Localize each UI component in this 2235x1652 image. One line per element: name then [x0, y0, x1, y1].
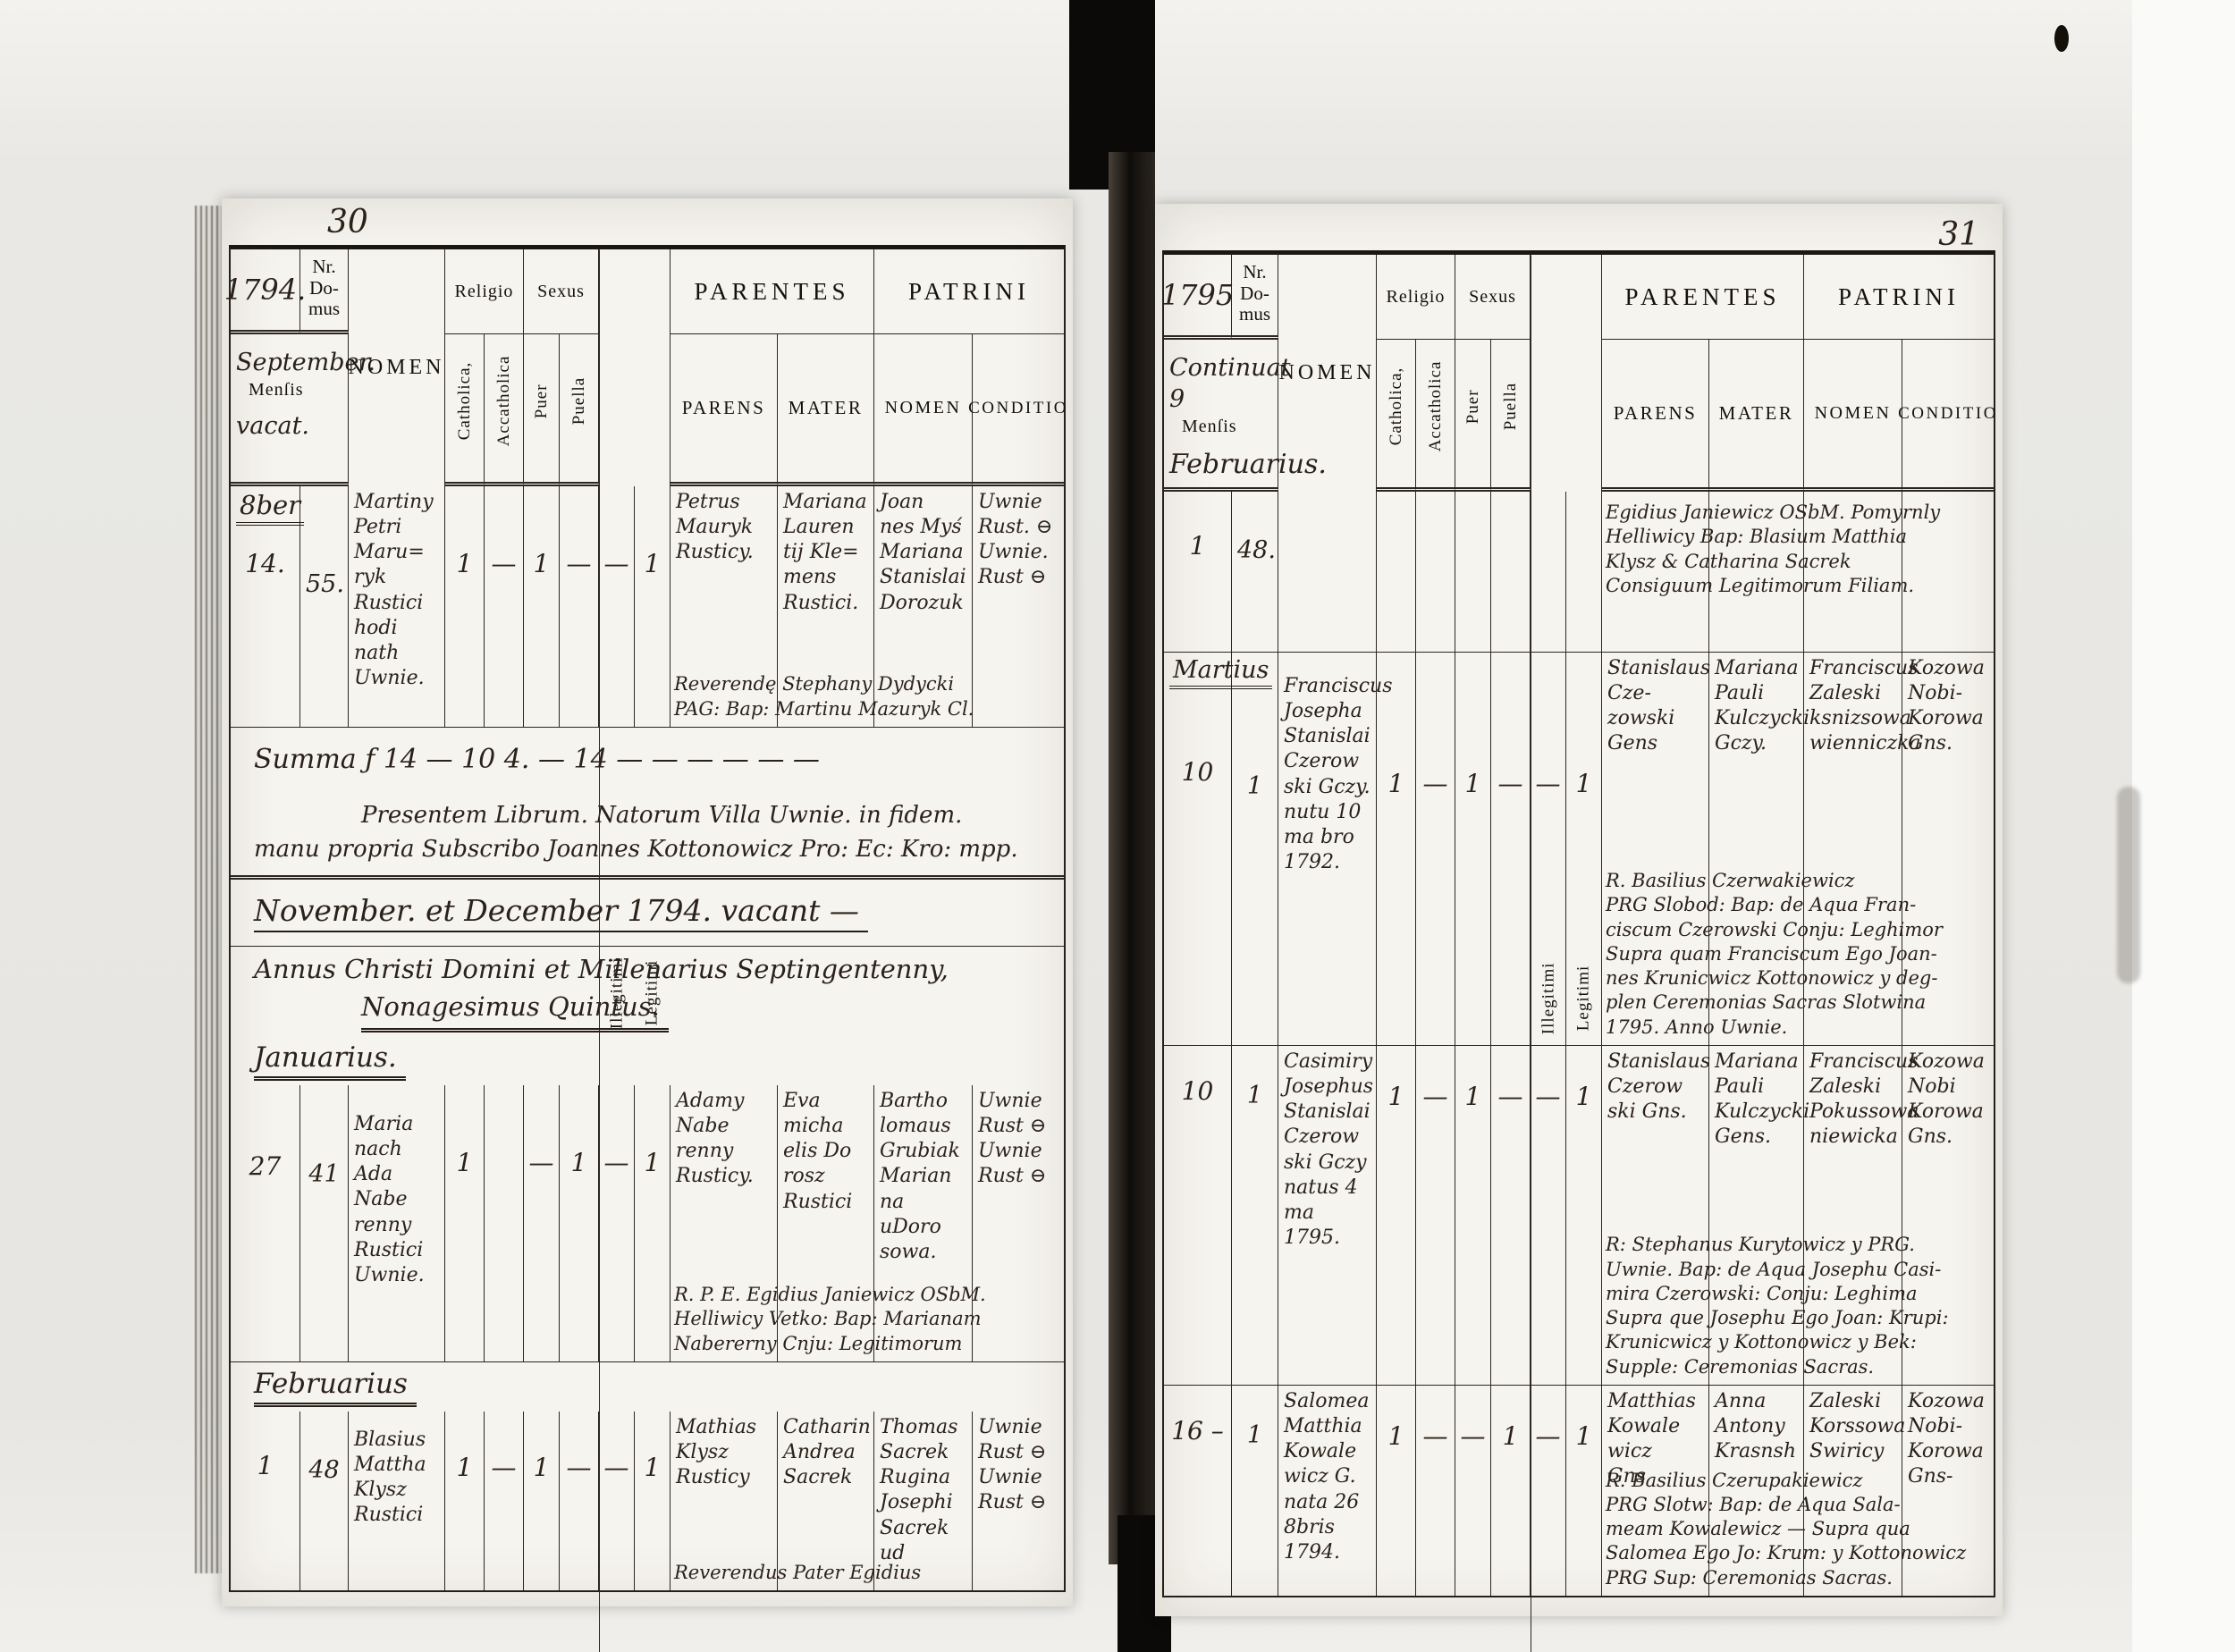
legitimi-tally: 1 [635, 1085, 670, 1362]
record-nomen-cell: Salomea Matthia Kowale wicz G. nata 26 8… [1278, 1386, 1377, 1596]
puer-col-header: Puer [1455, 340, 1491, 492]
illegitimi-tally [1531, 492, 1566, 653]
right-page-number: 31 [1938, 216, 1979, 253]
tally-mark: 1 [534, 1453, 550, 1482]
godparents-names: Franciscus Zaleski Pokussowa niewicka [1809, 1049, 1896, 1150]
nr-label: Nr. [312, 256, 335, 277]
accatholica-col-header: Accatholica [485, 334, 524, 486]
vacant-months-row: November. et December 1794. vacant — [231, 880, 1064, 947]
puella-label: Puella [1501, 343, 1521, 469]
record-nomen-cell: Blasius Mattha Klysz Rustici [349, 1412, 445, 1590]
right-page: 31 1795 Nr.Do- mus NOMEN Religio Sexus I… [1155, 204, 2003, 1616]
mater-col-header: MATER [1709, 340, 1804, 492]
februarius-label: Februarius [254, 1368, 417, 1407]
puella-tally: 1 [1491, 1386, 1531, 1596]
catholica-label: Catholica, [1387, 343, 1406, 469]
record-nomen-cell: Franciscus Josepha Stanislai Czerow ski … [1278, 653, 1377, 1046]
house-number: 1 [1237, 1421, 1272, 1449]
house-number: 48. [1237, 536, 1272, 564]
illegitimi-tally: — [1531, 653, 1566, 1046]
puer-tally: 1 [1455, 1046, 1491, 1386]
godparents-status: Uwnie Rust. ⊖ Uwnie. Rust ⊖ [978, 490, 1058, 591]
tally-mark: — [567, 1453, 592, 1482]
catholica-tally: 1 [1377, 1046, 1416, 1386]
accatholica-label: Accatholica [494, 338, 514, 464]
father-name: Adamy Nabe renny Rusticy. [676, 1089, 772, 1190]
accatholica-tally: — [1416, 1386, 1455, 1596]
godparents-names: Franciscus Zaleski ksnizsowa wienniczka [1809, 656, 1896, 757]
catholica-col-header: Catholica, [1377, 340, 1416, 492]
nr-label: Nr. [1243, 261, 1266, 282]
legitimi-tally: 1 [635, 1412, 670, 1590]
parentes-header: PARENTES [1602, 255, 1804, 340]
record-day: 16 – [1169, 1416, 1226, 1445]
parens-cell: Petrus Mauryk Rusticy. Reverendę Stephan… [670, 486, 778, 728]
tally-mark: — [1536, 1421, 1561, 1451]
record-date-cell: Martius 10 [1164, 653, 1232, 1046]
parens-cell: Adamy Nabe renny Rusticy. R. P. E. Egidi… [670, 1085, 778, 1362]
month-februarius: Februarius. [1169, 447, 1272, 482]
child-name: Salomea Matthia Kowale wicz G. nata 26 8… [1284, 1389, 1371, 1565]
month-october: 8ber [236, 490, 304, 526]
tally-mark: 1 [457, 1148, 473, 1177]
tally-mark: 1 [457, 549, 473, 578]
catholica-tally: 1 [1377, 653, 1416, 1046]
patrini-nomen-col-header: NOMEN [1804, 340, 1902, 492]
accatholica-tally: — [485, 486, 524, 728]
puer-tally [1455, 492, 1491, 653]
godparents-status: Kozowa Nobi- Korowa Gns. [1908, 656, 1988, 757]
tally-mark: 1 [645, 1453, 661, 1482]
tally-mark: 1 [1503, 1421, 1519, 1451]
tally-mark: 1 [1576, 1082, 1592, 1111]
godparents-status: Uwnie Rust ⊖ Uwnie Rust ⊖ [978, 1415, 1058, 1516]
puella-tally: — [1491, 653, 1531, 1046]
tally-mark: — [1498, 1082, 1523, 1111]
left-page-number: 30 [327, 204, 368, 240]
record-domus-cell: 48 [300, 1412, 349, 1590]
tally-mark: 1 [1576, 1421, 1592, 1451]
accatholica-tally: — [485, 1412, 524, 1590]
child-name: Casimiry Josephus Stanislai Czerow ski G… [1284, 1049, 1371, 1251]
legitimi-tally [1566, 492, 1602, 653]
godparents-names: Thomas Sacrek Rugina Josephi Sacrek ud [880, 1415, 966, 1566]
puella-col-header: Puella [560, 334, 599, 486]
accatholica-tally [1416, 492, 1455, 653]
month-header-cell: Continuat 9 Menſis Februarius. [1164, 340, 1278, 492]
catholica-tally: 1 [1377, 1386, 1416, 1596]
mensis-label: Menſis [1182, 415, 1272, 438]
puer-col-header: Puer [524, 334, 560, 486]
tally-mark: 1 [1576, 769, 1592, 798]
parens-cell: Mathias Klysz Rusticy Reverendus Pater E… [670, 1412, 778, 1590]
tally-mark: — [529, 1148, 554, 1177]
baptism-note: Egidius Janiewicz OSbM. Pomyrnly Helliwi… [1606, 501, 1995, 598]
puella-tally: 1 [560, 1085, 599, 1362]
tally-mark: 1 [1465, 1082, 1481, 1111]
illegitimi-tally: — [599, 1085, 635, 1362]
house-number: 41 [306, 1160, 342, 1188]
book-spine-gutter [1109, 152, 1155, 1564]
attestation-line-1: Presentem Librum. Natorum Villa Uwnie. i… [361, 799, 962, 833]
record-nomen-cell: Martiny Petri Maru= ryk Rustici hodi nat… [349, 486, 445, 728]
legitimi-tally: 1 [635, 486, 670, 728]
annus-line-2: Nonagesimus Quintus. [361, 988, 669, 1032]
record-domus-cell: 1 [1232, 1046, 1278, 1386]
summa-line: Summa ƒ 14 — 10 4. — 14 — — — — — — [254, 744, 820, 775]
januarius-row: Januarius. [231, 1036, 1064, 1085]
mother-name: Catharin Andrea Sacrek [783, 1415, 868, 1490]
register-scan: 30 1794. Nr.Do- mus NOMEN Religio Sexus … [0, 0, 2235, 1652]
house-number: 48 [306, 1456, 342, 1484]
tally-mark: — [567, 549, 592, 578]
thori-header-group: Illegitimi Legitimi Thori [1531, 255, 1602, 492]
record-date-cell: 27 [231, 1085, 300, 1362]
child-name: Franciscus Josepha Stanislai Czerow ski … [1284, 674, 1371, 875]
illegitimi-tally: — [1531, 1386, 1566, 1596]
parens-col-header: PARENS [1602, 340, 1709, 492]
puer-label: Puer [1463, 343, 1483, 469]
record-date-cell: 1 [231, 1412, 300, 1590]
left-register-table: 1794. Nr.Do- mus NOMEN Religio Sexus Ill… [229, 245, 1066, 1592]
catholica-tally: 1 [445, 1412, 485, 1590]
tally-mark: 1 [1388, 769, 1404, 798]
house-number: 55. [306, 570, 342, 598]
house-number: 1 [1237, 1082, 1272, 1109]
legitimi-tally: 1 [1566, 1386, 1602, 1596]
scan-edge-band [2132, 0, 2235, 1652]
godparents-names: Zaleski Korssowa Swiricy [1809, 1389, 1896, 1464]
record-domus-cell: 1 [1232, 1386, 1278, 1596]
accatholica-col-header: Accatholica [1416, 340, 1455, 492]
puella-tally [1491, 492, 1531, 653]
mother-name: Mariana Pauli Kulczycki Gczy. [1715, 656, 1798, 757]
puella-label: Puella [569, 338, 589, 464]
tally-mark: — [604, 549, 629, 578]
tally-mark: — [604, 1148, 629, 1177]
tally-mark: 1 [1465, 769, 1481, 798]
parens-cell: Matthias Kowale wicz Gns R. Basilius Cze… [1602, 1386, 1709, 1596]
legitimi-tally: 1 [1566, 653, 1602, 1046]
record-day: 1 [1169, 531, 1226, 560]
puella-tally: — [1491, 1046, 1531, 1386]
record-domus-cell: 48. [1232, 492, 1278, 653]
catholica-tally: 1 [445, 1085, 485, 1362]
right-register-table: 1795 Nr.Do- mus NOMEN Religio Sexus Ille… [1162, 250, 1995, 1597]
legitimi-tally: 1 [1566, 1046, 1602, 1386]
mother-name: Mariana Pauli Kulczycki Gens. [1715, 1049, 1798, 1150]
record-date-cell: 1 [1164, 492, 1232, 653]
puer-tally: 1 [524, 1412, 560, 1590]
parentes-header: PARENTES [670, 249, 874, 334]
puer-label: Puer [532, 338, 552, 464]
mother-name: Eva micha elis Do rosz Rustici [783, 1089, 868, 1215]
nr-domus-header: Nr.Do- mus [300, 249, 349, 334]
februarius-row: Februarius [231, 1362, 1064, 1412]
tally-mark: 1 [645, 1148, 661, 1177]
record-day: 27 [236, 1151, 294, 1181]
puella-tally: — [560, 1412, 599, 1590]
tally-mark: — [1423, 1082, 1448, 1111]
tally-mark: 1 [1388, 1082, 1404, 1111]
accatholica-tally: — [1416, 653, 1455, 1046]
sexus-header: Sexus [1455, 255, 1531, 340]
parens-cell: Egidius Janiewicz OSbM. Pomyrnly Helliwi… [1602, 492, 1709, 653]
illegitimi-tally: — [1531, 1046, 1566, 1386]
tally-mark: 1 [534, 549, 550, 578]
tally-mark: — [1498, 769, 1523, 798]
tally-mark: 1 [571, 1148, 587, 1177]
tally-mark: — [1461, 1421, 1486, 1451]
puella-col-header: Puella [1491, 340, 1531, 492]
godparents-names: Bartho lomaus Grubiak Marian na uDoro so… [880, 1089, 966, 1265]
catholica-label: Catholica, [455, 338, 475, 464]
vacat-note: vacat. [236, 410, 342, 442]
domus-label: Do- mus [306, 278, 342, 320]
father-name: Mathias Klysz Rusticy [676, 1415, 772, 1490]
summa-row: Summa ƒ 14 — 10 4. — 14 — — — — — — [231, 728, 1064, 790]
baptism-note: R. P. E. Egidius Janiewicz OSbM. Helliwi… [674, 1283, 1064, 1356]
accatholica-tally: — [1416, 1046, 1455, 1386]
thori-header-group: Illegitimi Legitimi Thori [599, 249, 670, 486]
record-date-cell: 8ber 14. [231, 486, 300, 728]
attestation-row: Presentem Librum. Natorum Villa Uwnie. i… [231, 790, 1064, 880]
catholica-tally: 1 [445, 486, 485, 728]
baptism-note: Reverendę Stephany Dydycki PAG: Bap: Mar… [674, 672, 1064, 721]
mensis-label: Menſis [249, 378, 342, 401]
record-day: 10 [1169, 1076, 1226, 1106]
annus-line-1: Annus Christi Domini et Millenarius Sept… [254, 950, 949, 988]
nr-domus-header: Nr.Do- mus [1232, 255, 1278, 340]
tally-mark: 1 [645, 549, 661, 578]
record-date-cell: 16 – [1164, 1386, 1232, 1596]
baptism-note: R: Stephanus Kurytowicz y PRG. Uwnie. Ba… [1606, 1233, 1995, 1379]
tally-mark: — [1536, 769, 1561, 798]
month-header-cell: September. Menſis vacat. [231, 334, 349, 486]
scan-speck [2054, 25, 2069, 52]
accatholica-tally [485, 1085, 524, 1362]
tally-mark: 1 [1388, 1421, 1404, 1451]
father-name: Stanislaus Cze- zowski Gens [1607, 656, 1703, 757]
domus-label: Do- mus [1237, 283, 1272, 325]
tally-mark: — [1423, 1421, 1448, 1451]
record-day: 1 [236, 1451, 294, 1480]
baptism-note: R. Basilius Czerwakiewicz PRG Slobod: Ba… [1606, 869, 1995, 1040]
father-name: Petrus Mauryk Rusticy. [676, 490, 772, 565]
left-page: 30 1794. Nr.Do- mus NOMEN Religio Sexus … [222, 198, 1073, 1606]
record-nomen-cell: Casimiry Josephus Stanislai Czerow ski G… [1278, 1046, 1377, 1386]
house-number: 1 [1237, 772, 1272, 800]
puella-tally: — [560, 486, 599, 728]
annus-row: Annus Christi Domini et Millenarius Sept… [231, 947, 1064, 1036]
patrini-header: PATRINI [1804, 255, 1994, 340]
religio-header: Religio [1377, 255, 1455, 340]
parens-cell: Stanislaus Cze- zowski Gens R. Basilius … [1602, 653, 1709, 1046]
conditio-col-header: CONDITIO [973, 334, 1064, 486]
accatholica-label: Accatholica [1426, 343, 1446, 469]
tally-mark: 1 [457, 1453, 473, 1482]
child-name: Maria nach Ada Nabe renny Rustici Uwnie. [354, 1112, 439, 1288]
attestation-line-2: manu propria Subscribo Joannes Kottonowi… [254, 833, 1018, 867]
parens-col-header: PARENS [670, 334, 778, 486]
baptism-note: R. Basilius Czerupakiewicz PRG Slotw: Ba… [1606, 1469, 1995, 1590]
parens-cell: Stanislaus Czerow ski Gns. R: Stephanus … [1602, 1046, 1709, 1386]
child-name: Martiny Petri Maru= ryk Rustici hodi nat… [354, 490, 439, 691]
patrini-header: PATRINI [874, 249, 1064, 334]
illegitimi-tally: — [599, 1412, 635, 1590]
tally-mark: — [604, 1453, 629, 1482]
record-domus-cell: 1 [1232, 653, 1278, 1046]
record-nomen-cell: Maria nach Ada Nabe renny Rustici Uwnie. [349, 1085, 445, 1362]
godparents-status: Uwnie Rust ⊖ Uwnie Rust ⊖ [978, 1089, 1058, 1190]
record-nomen-cell [1278, 492, 1377, 653]
record-domus-cell: 41 [300, 1085, 349, 1362]
catholica-tally [1377, 492, 1416, 653]
godparents-status: Kozowa Nobi Korowa Gns. [1908, 1049, 1988, 1150]
record-domus-cell: 55. [300, 486, 349, 728]
puer-tally: — [1455, 1386, 1491, 1596]
patrini-nomen-col-header: NOMEN [874, 334, 973, 486]
puer-tally: — [524, 1085, 560, 1362]
mother-name: Anna Antony Krasnsh [1715, 1389, 1798, 1464]
tally-mark: — [1536, 1082, 1561, 1111]
baptism-note: Reverendus Pater Egidius [674, 1561, 1064, 1585]
record-day: 14. [236, 549, 294, 578]
puer-tally: 1 [524, 486, 560, 728]
record-day: 10 [1169, 757, 1226, 787]
year-cell: 1795 [1164, 255, 1232, 340]
child-name: Blasius Mattha Klysz Rustici [354, 1428, 439, 1529]
conditio-col-header: CONDITIO [1902, 340, 1994, 492]
mother-name: Mariana Lauren tij Kle= mens Rustici. [783, 490, 868, 616]
sexus-header: Sexus [524, 249, 599, 334]
religio-header: Religio [445, 249, 524, 334]
tally-mark: — [492, 549, 517, 578]
catholica-col-header: Catholica, [445, 334, 485, 486]
puer-tally: 1 [1455, 653, 1491, 1046]
tally-mark: — [1423, 769, 1448, 798]
page-stack-edge [195, 206, 225, 1573]
year-cell: 1794. [231, 249, 300, 334]
vacant-line: November. et December 1794. vacant — [254, 893, 868, 932]
father-name: Stanislaus Czerow ski Gns. [1607, 1049, 1703, 1125]
record-date-cell: 10 [1164, 1046, 1232, 1386]
continuat-note: Continuat 9 [1169, 352, 1272, 415]
tally-mark: — [492, 1453, 517, 1482]
illegitimi-tally: — [599, 486, 635, 728]
mater-col-header: MATER [778, 334, 874, 486]
godparents-names: Joan nes Myś Mariana Stanislai Dorozuk [880, 490, 966, 616]
scan-smudge [2117, 787, 2140, 983]
month-september: September. [236, 347, 342, 378]
januarius-label: Januarius. [254, 1041, 406, 1081]
